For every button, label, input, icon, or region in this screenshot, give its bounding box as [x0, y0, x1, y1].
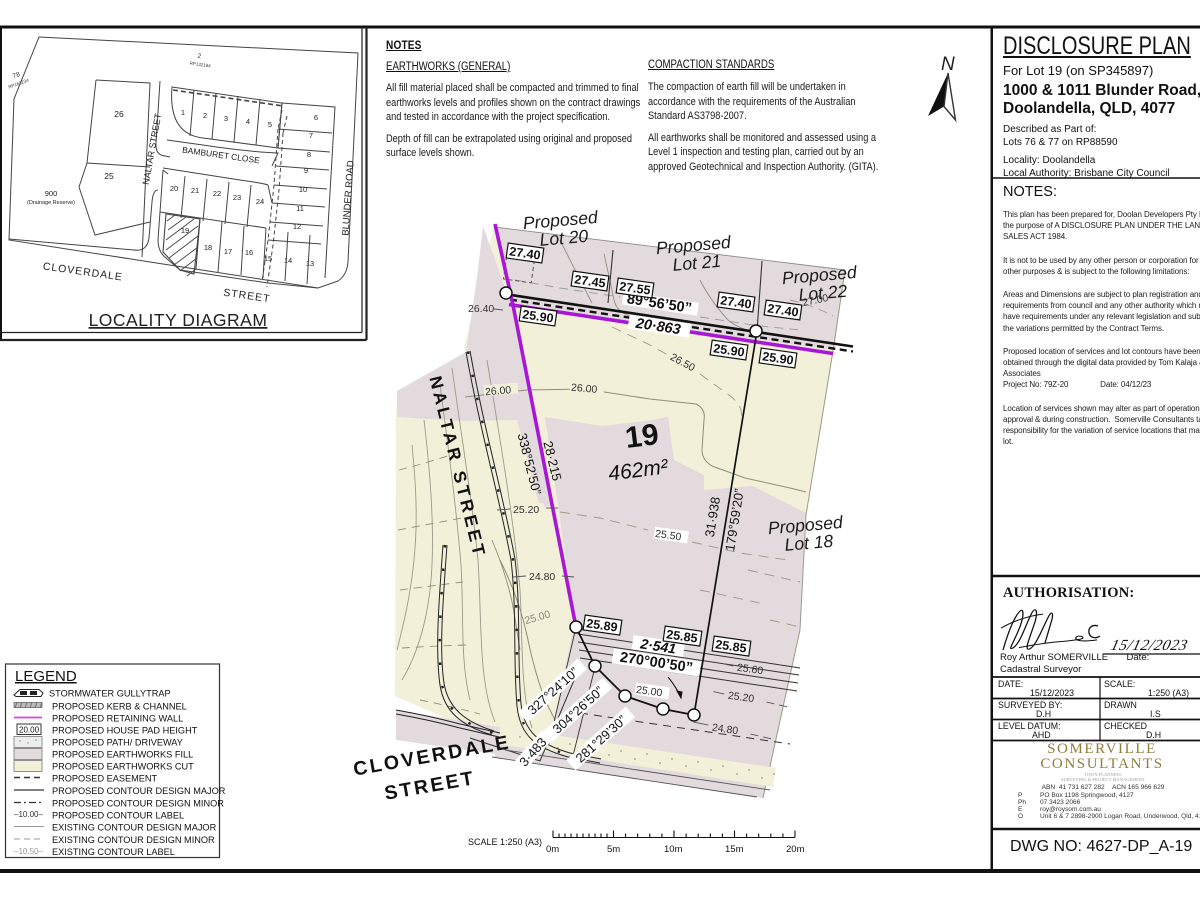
svg-text:PROPOSED RETAINING WALL: PROPOSED RETAINING WALL [52, 714, 183, 724]
svg-text:Ph: Ph [1018, 799, 1026, 806]
svg-text:–10.00–: –10.00– [14, 810, 43, 819]
svg-text:D.H: D.H [1036, 709, 1051, 719]
svg-text:5: 5 [268, 120, 272, 129]
svg-text:20: 20 [170, 184, 178, 193]
svg-text:07 3423 2066: 07 3423 2066 [1040, 799, 1081, 806]
svg-text:23: 23 [233, 193, 241, 202]
svg-text:4: 4 [246, 117, 250, 126]
svg-text:AHD: AHD [1032, 730, 1051, 740]
svg-text:PROPOSED CONTOUR DESIGN MAJOR: PROPOSED CONTOUR DESIGN MAJOR [52, 786, 226, 796]
svg-text:26.40: 26.40 [468, 303, 494, 315]
svg-text:SURVEYING & PROJECT MANAGEMENT: SURVEYING & PROJECT MANAGEMENT [1061, 777, 1145, 782]
svg-text:PROPOSED EASEMENT: PROPOSED EASEMENT [52, 774, 158, 784]
svg-text:14: 14 [284, 256, 292, 265]
svg-text:900: 900 [45, 189, 58, 198]
svg-text:SOMERVILLE: SOMERVILLE [1047, 741, 1157, 757]
svg-text:20.00: 20.00 [19, 726, 40, 735]
svg-text:RP132184: RP132184 [189, 61, 211, 69]
svg-text:15: 15 [264, 254, 272, 263]
svg-text:I.S: I.S [1150, 709, 1161, 719]
svg-text:11: 11 [296, 204, 304, 213]
svg-text:16: 16 [245, 248, 253, 257]
svg-text:O: O [1018, 813, 1023, 820]
svg-text:PROPOSED PATH/ DRIVEWAY: PROPOSED PATH/ DRIVEWAY [52, 738, 183, 748]
svg-text:78: 78 [12, 71, 22, 80]
svg-text:Lot 18: Lot 18 [784, 531, 834, 555]
svg-text:0m: 0m [546, 844, 559, 855]
svg-text:10m: 10m [664, 844, 683, 855]
svg-text:EXISTING CONTOUR LABEL: EXISTING CONTOUR LABEL [52, 847, 175, 857]
svg-text:EXISTING CONTOUR DESIGN MINOR: EXISTING CONTOUR DESIGN MINOR [52, 835, 215, 845]
svg-text:Lot 20: Lot 20 [539, 226, 589, 250]
svg-text:22: 22 [213, 189, 221, 198]
svg-text:15/12/2023: 15/12/2023 [1030, 688, 1074, 698]
svg-text:STREET: STREET [223, 287, 272, 305]
svg-text:1:250 (A3): 1:250 (A3) [1148, 688, 1189, 698]
svg-text:26: 26 [114, 109, 124, 119]
svg-text:NALTAR STREET: NALTAR STREET [141, 112, 163, 185]
svg-text:24.80: 24.80 [529, 571, 555, 583]
svg-text:6: 6 [314, 113, 318, 122]
svg-text:N: N [941, 54, 955, 75]
svg-text:3: 3 [224, 114, 228, 123]
svg-text:18: 18 [204, 243, 212, 252]
svg-text:21: 21 [191, 186, 199, 195]
svg-text:D.H: D.H [1146, 730, 1161, 740]
svg-text:PROPOSED KERB & CHANNEL: PROPOSED KERB & CHANNEL [52, 702, 187, 712]
svg-text:Lot 21: Lot 21 [672, 251, 722, 275]
svg-text:Unit 6 & 7 2898-2900 Logan Roa: Unit 6 & 7 2898-2900 Logan Road, Underwo… [1040, 813, 1200, 820]
svg-text:1: 1 [181, 108, 185, 117]
svg-text:19: 19 [623, 418, 660, 455]
svg-text:PROPOSED EARTHWORKS CUT: PROPOSED EARTHWORKS CUT [52, 762, 194, 772]
svg-text:roy@roysom.com.au: roy@roysom.com.au [1040, 806, 1101, 813]
svg-text:ABN 41 731 627 282 ACN 165: ABN 41 731 627 282 ACN 165 966 629 [1042, 784, 1165, 791]
svg-text:EXISTING CONTOUR DESIGN MAJOR: EXISTING CONTOUR DESIGN MAJOR [52, 823, 217, 833]
svg-text:10: 10 [299, 185, 307, 194]
svg-text:LEVEL DATUM:: LEVEL DATUM: [998, 721, 1061, 731]
svg-text:CLOVERDALE: CLOVERDALE [42, 260, 123, 283]
svg-text:LEGEND: LEGEND [15, 668, 77, 685]
svg-text:25.20: 25.20 [513, 504, 539, 516]
svg-text:–10.50–: –10.50– [14, 847, 43, 856]
svg-text:24: 24 [256, 197, 264, 206]
svg-text:PROPOSED HOUSE PAD HEIGHT: PROPOSED HOUSE PAD HEIGHT [52, 726, 198, 736]
svg-text:2: 2 [197, 53, 202, 60]
svg-text:PO Box 1198 Springwood, 4127: PO Box 1198 Springwood, 4127 [1040, 792, 1134, 799]
svg-text:19: 19 [181, 226, 189, 235]
svg-text:8: 8 [307, 150, 311, 159]
svg-text:12: 12 [293, 222, 301, 231]
svg-text:17: 17 [224, 247, 232, 256]
svg-text:9: 9 [304, 166, 308, 175]
svg-text:CONSULTANTS: CONSULTANTS [1040, 756, 1163, 772]
svg-text:PROPOSED CONTOUR DESIGN MINOR: PROPOSED CONTOUR DESIGN MINOR [52, 799, 224, 809]
svg-text:DRAWN: DRAWN [1104, 700, 1137, 710]
svg-text:7: 7 [309, 131, 313, 140]
svg-text:2: 2 [203, 111, 207, 120]
svg-text:SCALE 1:250 (A3): SCALE 1:250 (A3) [468, 837, 542, 847]
svg-text:26.00: 26.00 [571, 382, 598, 396]
svg-text:PROPOSED CONTOUR LABEL: PROPOSED CONTOUR LABEL [52, 811, 184, 821]
svg-text:(Drainage Reserve): (Drainage Reserve) [27, 200, 75, 206]
svg-text:DATE:: DATE: [998, 679, 1023, 689]
svg-text:SCALE:: SCALE: [1104, 679, 1135, 689]
svg-text:13: 13 [306, 259, 314, 268]
svg-text:26.00: 26.00 [485, 384, 512, 398]
svg-text:20m: 20m [786, 844, 805, 855]
svg-text:PROPOSED EARTHWORKS FILL: PROPOSED EARTHWORKS FILL [52, 750, 193, 760]
svg-text:CHECKED: CHECKED [1104, 721, 1147, 731]
svg-text:STORMWATER GULLYTRAP: STORMWATER GULLYTRAP [49, 689, 171, 699]
svg-text:5m: 5m [607, 844, 620, 855]
svg-text:BLUNDER ROAD: BLUNDER ROAD [340, 160, 356, 236]
svg-text:P: P [1018, 792, 1023, 799]
svg-text:25: 25 [104, 171, 114, 181]
svg-text:SURVEYED BY:: SURVEYED BY: [998, 700, 1062, 710]
svg-text:15m: 15m [725, 844, 744, 855]
svg-text:LOCALITY DIAGRAM: LOCALITY DIAGRAM [89, 310, 268, 330]
svg-text:E: E [1018, 806, 1023, 813]
